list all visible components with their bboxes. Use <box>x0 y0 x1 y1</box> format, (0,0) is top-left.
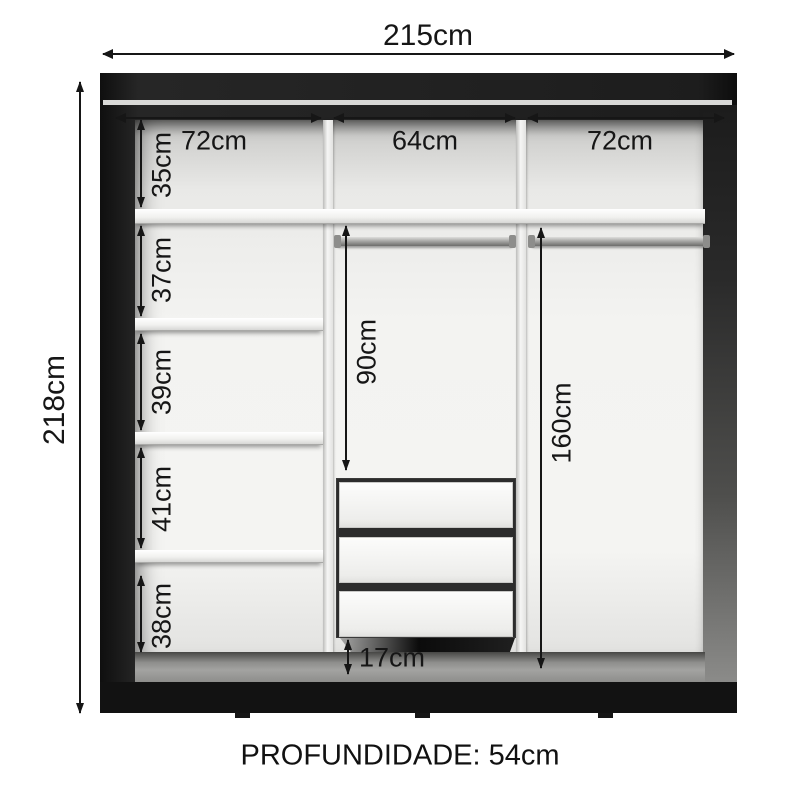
shelf-gap-arrow-5 <box>140 576 142 652</box>
shelf-gap-arrow-1 <box>140 120 142 207</box>
shelf-gap-label-4: 41cm <box>149 466 176 532</box>
section-width-arrow-left <box>116 117 321 119</box>
section-width-label-middle: 64cm <box>392 128 458 155</box>
section-width-arrow-right <box>528 117 724 119</box>
shelf-gap-label-5: 38cm <box>149 583 176 649</box>
divider-left <box>323 120 333 658</box>
drawer <box>339 482 513 528</box>
divider-right <box>516 120 526 658</box>
wardrobe-diagram: 215cm 218cm 72cm 64cm 72cm 35cm 37cm 39c… <box>0 0 800 800</box>
base-plinth <box>100 682 737 713</box>
section-width-arrow-middle <box>334 117 515 119</box>
section-width-label-left: 72cm <box>181 128 247 155</box>
top-panel-highlight <box>103 100 732 105</box>
shelf-gap-label-2: 37cm <box>149 237 176 303</box>
drawer <box>339 537 513 583</box>
shelf-gap-arrow-4 <box>140 448 142 548</box>
right-hang-arrow <box>540 228 542 668</box>
drawer <box>339 591 513 637</box>
shelf-gap-label-3: 39cm <box>149 349 176 415</box>
drawer-gap-label: 17cm <box>359 645 425 672</box>
total-width-label: 215cm <box>383 21 473 51</box>
left-shelf <box>135 550 323 563</box>
middle-hang-label: 90cm <box>354 319 381 385</box>
drawer-unit <box>336 478 516 638</box>
hanging-rod-middle <box>336 237 514 246</box>
right-side-panel <box>703 105 737 682</box>
left-shelf <box>135 318 323 331</box>
total-width-arrow <box>103 53 734 55</box>
total-height-arrow <box>79 82 81 713</box>
right-hang-label: 160cm <box>549 382 576 463</box>
middle-hang-arrow <box>345 226 347 470</box>
depth-label: PROFUNDIDADE: 54cm <box>240 740 559 773</box>
shelf-gap-arrow-3 <box>140 334 142 430</box>
foot <box>598 713 613 718</box>
foot <box>415 713 430 718</box>
hanging-rod-right <box>530 237 708 246</box>
section-width-label-right: 72cm <box>587 128 653 155</box>
shelf-gap-arrow-2 <box>140 226 142 316</box>
top-shelf <box>135 209 705 224</box>
shelf-gap-label-1: 35cm <box>149 132 176 198</box>
foot <box>235 713 250 718</box>
total-height-label: 218cm <box>40 355 70 445</box>
drawer-gap-arrow <box>347 640 349 674</box>
left-shelf <box>135 432 323 445</box>
